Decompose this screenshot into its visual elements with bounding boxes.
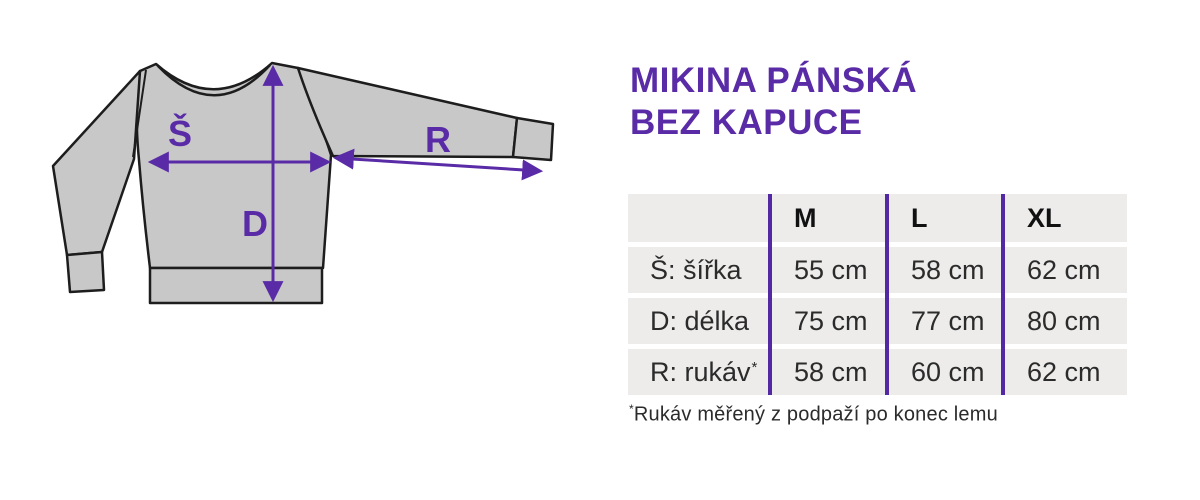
size-chart-page: Š D R MIKINA PÁNSKÁ BEZ KAPUCE M L XL Š:… (0, 0, 1200, 500)
size-col-header-xl: XL (1003, 194, 1127, 242)
footnote-text: Rukáv měřený z podpaží po konec lemu (634, 404, 998, 426)
size-table: M L XL Š: šířka 55 cm 58 cm 62 cm D: dél… (628, 194, 1127, 395)
measurement-label-text: R: rukáv (650, 357, 751, 388)
measurement-label-length: D: délka (628, 298, 770, 344)
table-divider (885, 194, 890, 395)
sleeve-label: R (425, 119, 451, 160)
page-title-line2: BEZ KAPUCE (630, 102, 917, 144)
measurement-value: 60 cm (887, 349, 1003, 395)
hem-band (150, 268, 322, 303)
measurement-value: 77 cm (887, 298, 1003, 344)
measurement-label-sleeve: R: rukáv* (628, 349, 770, 395)
page-title-line1: MIKINA PÁNSKÁ (630, 60, 917, 102)
page-title: MIKINA PÁNSKÁ BEZ KAPUCE (630, 60, 917, 144)
measurement-value: 80 cm (1003, 298, 1127, 344)
length-label: D (242, 203, 268, 244)
sleeve-footnote: *Rukáv měřený z podpaží po konec lemu (629, 402, 998, 427)
measurement-value: 62 cm (1003, 349, 1127, 395)
measurement-value: 75 cm (770, 298, 887, 344)
size-col-header-m: M (770, 194, 887, 242)
measurement-label-width: Š: šířka (628, 247, 770, 293)
corner-cell (628, 194, 770, 242)
table-divider (768, 194, 773, 395)
measurement-value: 62 cm (1003, 247, 1127, 293)
right-cuff (513, 118, 553, 160)
right-sleeve (298, 68, 517, 157)
sweatshirt-diagram: Š D R (0, 0, 600, 340)
sweatshirt-body (137, 63, 331, 268)
size-col-header-l: L (887, 194, 1003, 242)
width-label: Š (168, 112, 192, 154)
left-cuff (67, 252, 104, 292)
table-divider (1001, 194, 1006, 395)
measurement-value: 58 cm (770, 349, 887, 395)
measurement-value: 58 cm (887, 247, 1003, 293)
measurement-value: 55 cm (770, 247, 887, 293)
left-sleeve (53, 71, 140, 255)
